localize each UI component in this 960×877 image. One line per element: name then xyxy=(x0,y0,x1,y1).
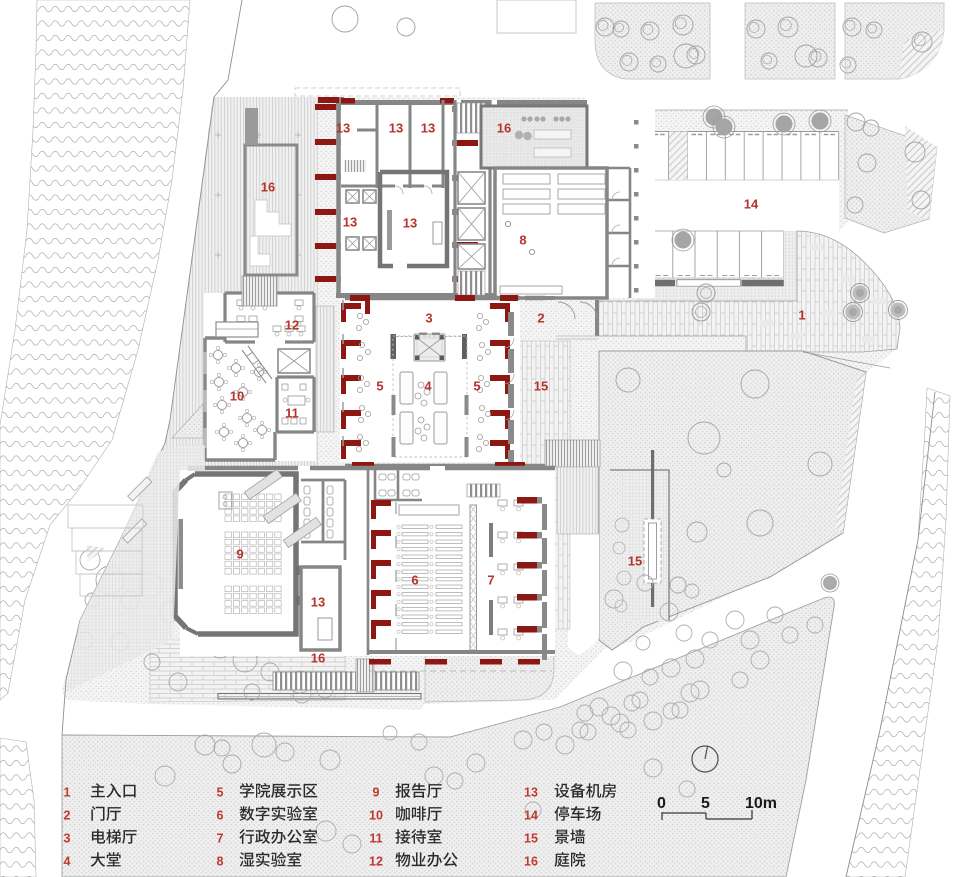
svg-text:4: 4 xyxy=(64,855,71,869)
svg-text:16: 16 xyxy=(497,121,511,136)
svg-text:4: 4 xyxy=(424,379,432,394)
svg-text:9: 9 xyxy=(236,547,243,562)
svg-text:15: 15 xyxy=(534,379,548,394)
svg-text:12: 12 xyxy=(369,855,383,869)
svg-text:13: 13 xyxy=(336,121,350,136)
svg-text:14: 14 xyxy=(744,197,759,212)
svg-text:11: 11 xyxy=(285,406,299,421)
svg-text:14: 14 xyxy=(524,809,538,823)
svg-text:8: 8 xyxy=(217,855,224,869)
svg-text:13: 13 xyxy=(421,121,435,136)
svg-text:16: 16 xyxy=(261,180,275,195)
svg-text:12: 12 xyxy=(285,318,299,333)
svg-text:16: 16 xyxy=(524,855,538,869)
svg-text:11: 11 xyxy=(369,832,382,846)
svg-text:6: 6 xyxy=(217,809,224,823)
svg-text:8: 8 xyxy=(519,233,526,248)
svg-text:13: 13 xyxy=(343,215,357,230)
svg-text:5: 5 xyxy=(473,379,480,394)
svg-text:5: 5 xyxy=(701,795,710,812)
svg-text:13: 13 xyxy=(389,121,403,136)
svg-text:2: 2 xyxy=(537,311,544,326)
svg-text:10: 10 xyxy=(369,809,383,823)
svg-text:5: 5 xyxy=(217,786,224,800)
svg-text:7: 7 xyxy=(487,573,494,588)
svg-text:0: 0 xyxy=(657,795,666,812)
svg-text:2: 2 xyxy=(64,809,71,823)
svg-text:5: 5 xyxy=(376,379,383,394)
svg-text:7: 7 xyxy=(217,832,224,846)
svg-text:1: 1 xyxy=(798,308,805,323)
svg-text:6: 6 xyxy=(411,573,418,588)
svg-text:3: 3 xyxy=(425,311,432,326)
svg-text:16: 16 xyxy=(311,651,325,666)
svg-text:1: 1 xyxy=(64,786,71,800)
svg-text:3: 3 xyxy=(64,832,71,846)
svg-text:15: 15 xyxy=(628,554,642,569)
svg-text:9: 9 xyxy=(373,786,380,800)
svg-text:13: 13 xyxy=(311,595,325,610)
svg-text:13: 13 xyxy=(524,786,538,800)
svg-text:10: 10 xyxy=(230,389,244,404)
svg-text:13: 13 xyxy=(403,216,417,231)
svg-text:15: 15 xyxy=(524,832,538,846)
svg-text:10m: 10m xyxy=(745,795,777,812)
